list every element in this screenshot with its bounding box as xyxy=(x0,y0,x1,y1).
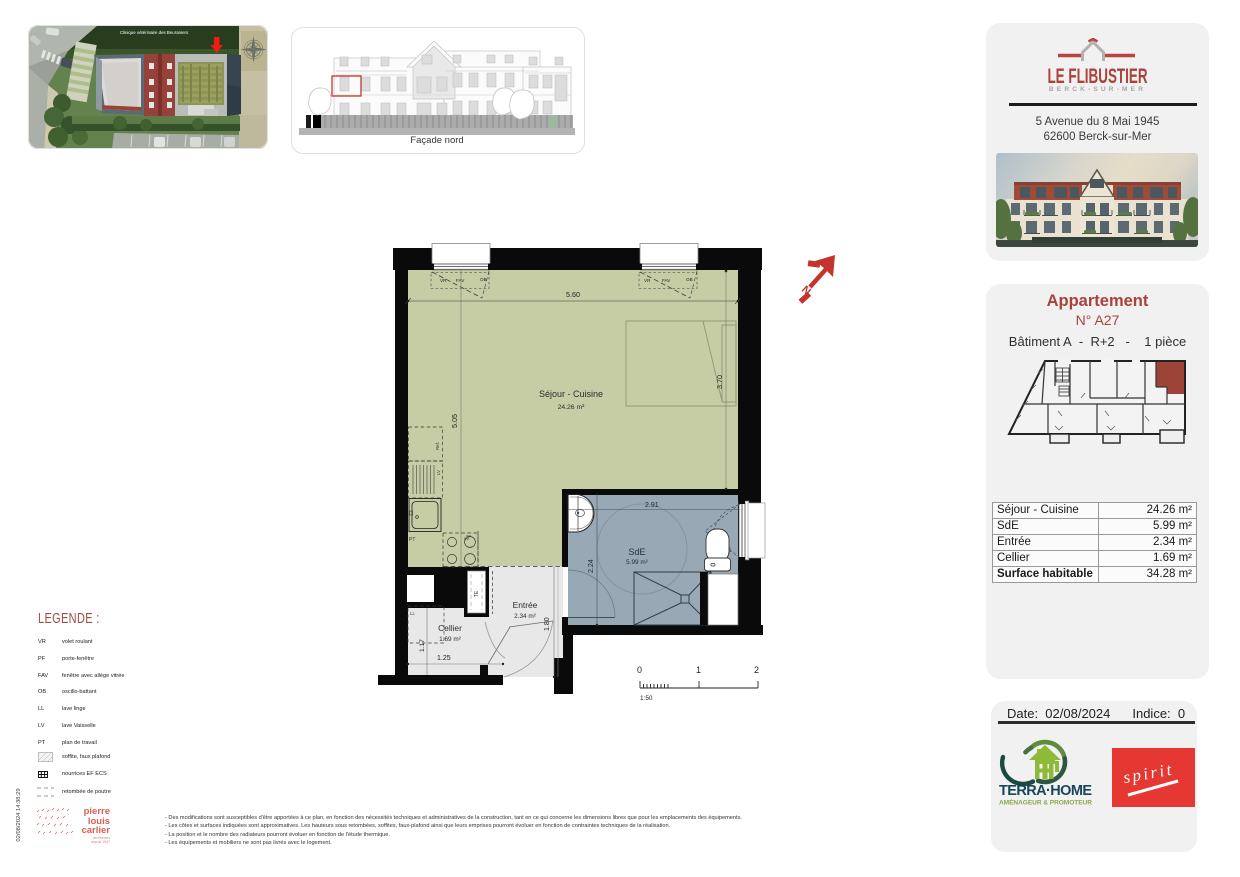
svg-text:5.05: 5.05 xyxy=(450,414,459,428)
svg-text:OB: OB xyxy=(480,277,487,282)
svg-text:2.34 m²: 2.34 m² xyxy=(514,613,536,620)
svg-text:1: 1 xyxy=(696,665,701,675)
svg-text:Cellier: Cellier xyxy=(438,623,462,633)
svg-text:Entrée: Entrée xyxy=(513,600,538,610)
svg-text:AMÉNAGEUR & PROMOTEUR: AMÉNAGEUR & PROMOTEUR xyxy=(999,798,1092,807)
svg-text:TERRA·HOME: TERRA·HOME xyxy=(999,783,1092,799)
svg-text:Clinique vétérinaire des Beura: Clinique vétérinaire des Beuraniers xyxy=(120,30,189,35)
svg-text:2.91: 2.91 xyxy=(645,502,659,509)
svg-text:1.69 m²: 1.69 m² xyxy=(439,636,461,643)
svg-text:OB: OB xyxy=(686,277,693,282)
svg-text:FAV: FAV xyxy=(662,278,671,283)
svg-text:Façade nord: Façade nord xyxy=(410,135,463,146)
svg-text:SdE: SdE xyxy=(628,547,645,557)
svg-text:2: 2 xyxy=(754,665,759,675)
svg-text:VR: VR xyxy=(644,278,651,283)
svg-text:5.60: 5.60 xyxy=(566,290,580,299)
svg-text:LV: LV xyxy=(436,470,441,475)
svg-text:VR: VR xyxy=(440,278,447,283)
svg-text:FAV: FAV xyxy=(456,278,465,283)
svg-text:TE: TE xyxy=(474,590,480,597)
svg-text:1.80: 1.80 xyxy=(544,617,551,631)
svg-text:0: 0 xyxy=(637,665,642,675)
svg-text:Evi: Evi xyxy=(464,537,469,541)
svg-text:1:50: 1:50 xyxy=(640,695,653,702)
svg-text:1.17: 1.17 xyxy=(419,639,426,652)
svg-text:LL: LL xyxy=(410,611,415,616)
svg-text:Ref.: Ref. xyxy=(435,442,440,450)
svg-text:2.24: 2.24 xyxy=(588,559,595,573)
svg-text:5.99 m²: 5.99 m² xyxy=(626,559,648,566)
svg-text:3.70: 3.70 xyxy=(715,375,724,389)
svg-text:1.25: 1.25 xyxy=(437,655,451,662)
svg-text:PT: PT xyxy=(409,537,415,543)
svg-text:24.26 m²: 24.26 m² xyxy=(558,404,586,411)
svg-text:Séjour - Cuisine: Séjour - Cuisine xyxy=(539,389,603,399)
